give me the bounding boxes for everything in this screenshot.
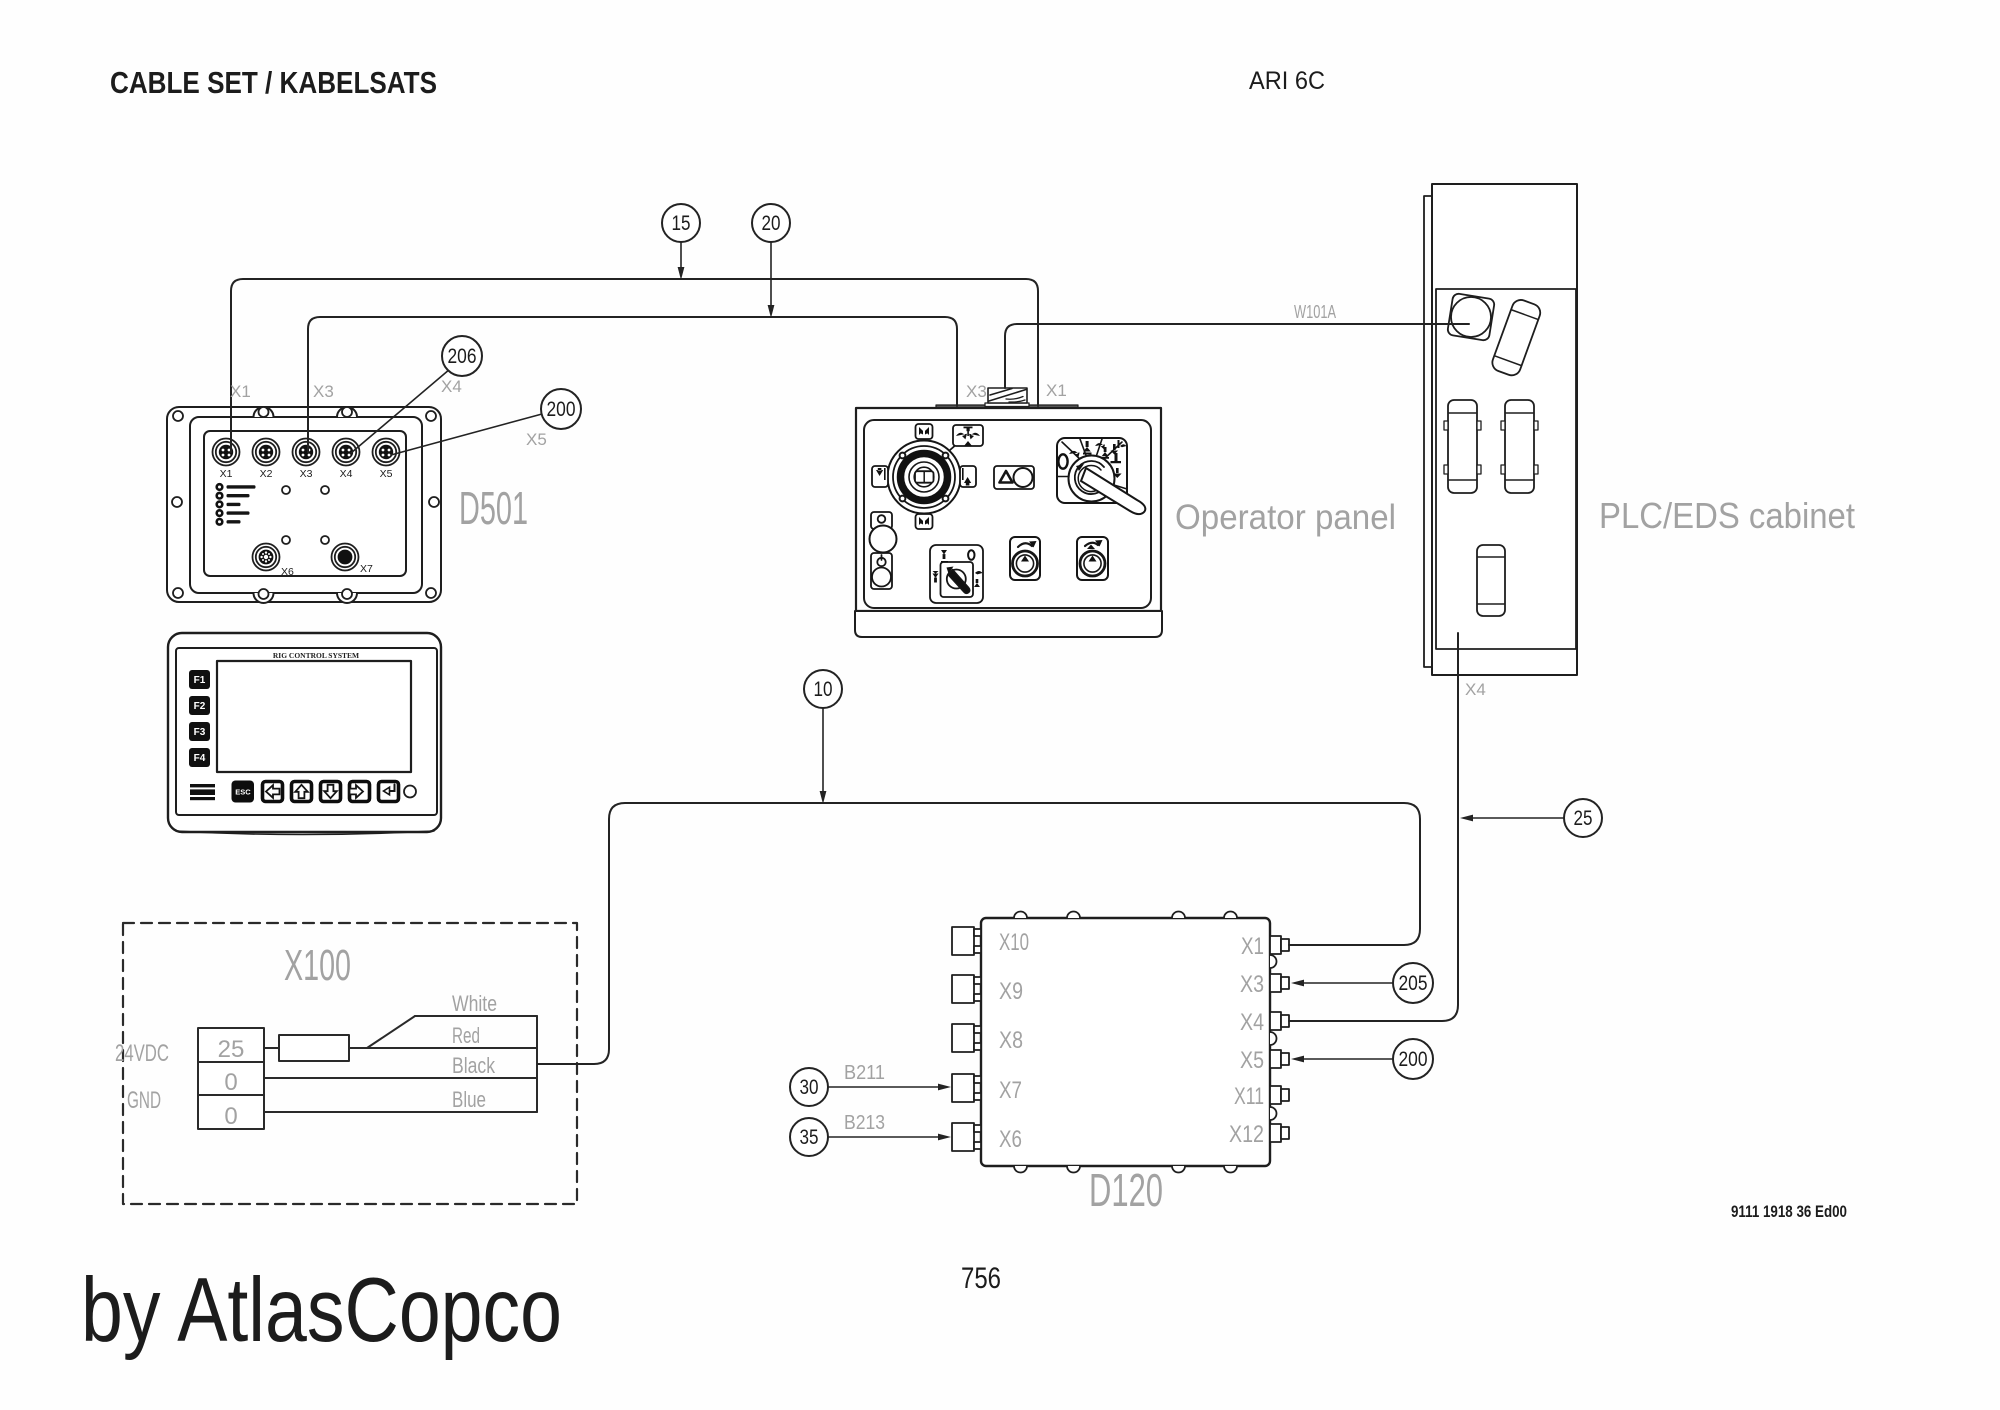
svg-text:20: 20 [762,212,781,235]
svg-text:White: White [452,991,497,1016]
svg-text:X9: X9 [999,978,1023,1005]
svg-text:X3: X3 [300,468,313,480]
svg-text:X5: X5 [380,468,393,480]
svg-text:X8: X8 [999,1027,1023,1054]
svg-text:Black: Black [452,1053,496,1078]
svg-text:30: 30 [800,1076,819,1099]
svg-text:X1: X1 [220,468,233,480]
svg-text:X6: X6 [999,1126,1022,1153]
svg-text:X7: X7 [360,563,373,575]
svg-text:B213: B213 [844,1112,885,1134]
svg-text:X3: X3 [966,382,987,401]
svg-text:X4: X4 [340,468,353,480]
svg-text:W101A: W101A [1294,302,1336,322]
svg-text:X6: X6 [281,566,294,578]
svg-text:X11: X11 [1234,1083,1264,1110]
svg-text:25: 25 [218,1036,245,1063]
svg-text:X4: X4 [1240,1009,1264,1036]
svg-text:206: 206 [448,345,477,368]
svg-text:9111 1918 36 Ed00: 9111 1918 36 Ed00 [1731,1202,1847,1221]
svg-text:CABLE SET / KABELSATS: CABLE SET / KABELSATS [110,65,437,100]
svg-text:X100: X100 [284,941,351,990]
svg-text:ESC: ESC [235,788,251,797]
svg-text:15: 15 [672,212,691,235]
svg-text:X5: X5 [1240,1047,1264,1074]
svg-text:X2: X2 [260,468,273,480]
svg-text:200: 200 [1399,1048,1428,1071]
svg-text:B211: B211 [844,1062,885,1084]
svg-text:ARI 6C: ARI 6C [1249,67,1325,95]
svg-text:205: 205 [1399,972,1428,995]
svg-text:RIG CONTROL SYSTEM: RIG CONTROL SYSTEM [273,651,359,660]
svg-text:10: 10 [814,678,833,701]
svg-text:X4: X4 [441,377,462,396]
svg-text:X7: X7 [999,1077,1022,1104]
svg-text:Operator panel: Operator panel [1175,498,1396,537]
svg-text:0: 0 [224,1069,237,1096]
svg-text:0: 0 [224,1103,237,1130]
svg-text:PLC/EDS cabinet: PLC/EDS cabinet [1599,495,1855,536]
svg-text:GND: GND [127,1087,161,1114]
svg-text:756: 756 [961,1262,1001,1295]
svg-text:35: 35 [800,1126,819,1149]
svg-text:24VDC: 24VDC [115,1040,169,1067]
svg-text:F2: F2 [194,701,206,712]
svg-text:D501: D501 [459,482,528,534]
svg-text:Red: Red [452,1023,480,1048]
svg-text:X12: X12 [1229,1121,1264,1148]
svg-text:X1: X1 [230,382,251,401]
svg-text:X4: X4 [1465,680,1486,699]
svg-text:F1: F1 [194,675,206,686]
svg-text:by AtlasCopco: by AtlasCopco [81,1260,562,1361]
svg-text:X10: X10 [999,929,1029,956]
svg-text:F4: F4 [194,753,206,764]
svg-text:F3: F3 [194,727,206,738]
svg-text:X5: X5 [526,430,547,449]
svg-text:Blue: Blue [452,1087,486,1112]
svg-text:X3: X3 [313,382,334,401]
svg-text:200: 200 [547,398,576,421]
svg-text:25: 25 [1574,807,1593,830]
svg-text:X1: X1 [1241,933,1264,960]
svg-text:D120: D120 [1089,1164,1163,1216]
svg-text:X1: X1 [1046,381,1067,400]
svg-text:X3: X3 [1240,971,1264,998]
